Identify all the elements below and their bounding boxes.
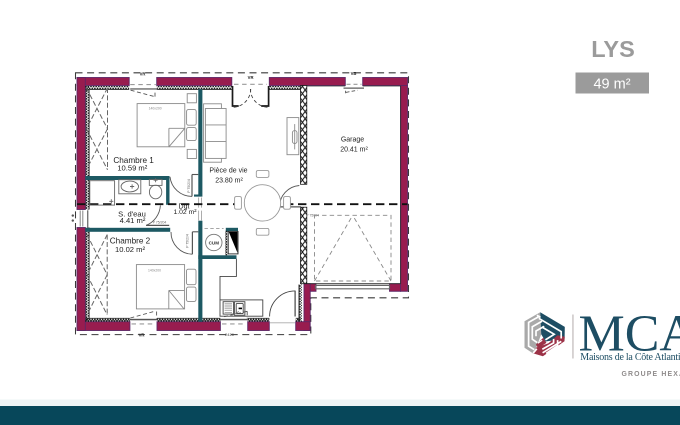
svg-text:LYS: LYS xyxy=(591,36,635,62)
svg-text:Garage: Garage xyxy=(341,136,364,143)
svg-text:P 75/204: P 75/204 xyxy=(187,179,191,193)
svg-text:VB: VB xyxy=(351,71,357,76)
svg-text:VR: VR xyxy=(248,75,254,80)
svg-text:49 m²: 49 m² xyxy=(593,77,630,93)
svg-text:10.59 m²: 10.59 m² xyxy=(117,164,147,173)
svg-text:Maisons de la Côte Atlantique: Maisons de la Côte Atlantique xyxy=(580,352,680,363)
svg-text:1.02 m²: 1.02 m² xyxy=(173,209,197,216)
svg-text:140x200: 140x200 xyxy=(148,269,161,273)
svg-text:VR: VR xyxy=(139,332,145,337)
svg-text:VR: VR xyxy=(140,71,146,76)
svg-text:10.02 m²: 10.02 m² xyxy=(115,245,145,254)
svg-text:P 75/204: P 75/204 xyxy=(153,220,167,224)
svg-text:23.80 m²: 23.80 m² xyxy=(215,177,243,184)
svg-text:4.41 m²: 4.41 m² xyxy=(120,216,146,225)
svg-text:CUM: CUM xyxy=(209,240,220,245)
svg-text:Pièce de vie: Pièce de vie xyxy=(209,167,247,174)
svg-text:GROUPE HEXAOM: GROUPE HEXAOM xyxy=(622,371,680,378)
svg-text:P 75/204: P 75/204 xyxy=(186,234,190,248)
svg-text:2420: 2420 xyxy=(225,332,235,337)
svg-text:140x200: 140x200 xyxy=(149,106,162,110)
svg-text:20.41 m²: 20.41 m² xyxy=(340,146,368,153)
